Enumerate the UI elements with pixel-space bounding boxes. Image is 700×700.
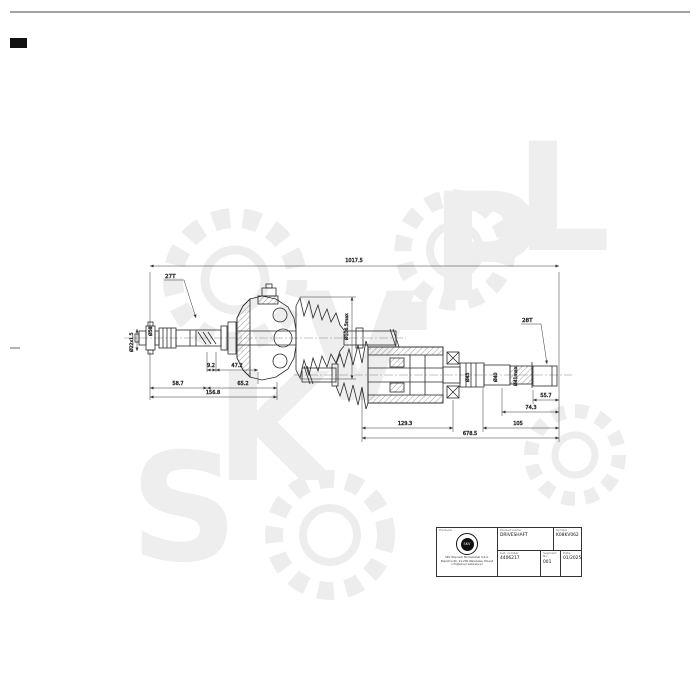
segment-value: 001	[541, 559, 560, 568]
drawing-sheet: S K V . P L	[0, 0, 700, 700]
dim-boot-max-dia: Ø106.5max	[343, 313, 350, 340]
dim-55-7: 55.7	[540, 393, 551, 399]
ref-spline-right: 28T	[522, 318, 533, 324]
dim-shaft-dia: Ø58	[147, 326, 154, 336]
company-address: SKV Wojciech Michałowski S.K.A. Paprotna…	[437, 556, 497, 566]
date-cell: Date 01/2025	[561, 551, 581, 576]
symbol-value: K08KV062	[554, 532, 581, 541]
dim-thread: Ø22x1.5	[128, 332, 135, 352]
watermark-letter: L	[515, 112, 611, 286]
date-value: 01/2025	[561, 555, 581, 564]
dim-58-7: 58.7	[172, 381, 183, 387]
producer-label: Producer	[437, 528, 497, 532]
ref-spline-left: 27T	[165, 274, 176, 280]
dim-156-8: 156.8	[206, 390, 220, 396]
dim-129-3: 129.3	[398, 421, 412, 427]
segment-cell: Segment No. 001	[541, 551, 561, 576]
company-logo-icon: SKV	[456, 533, 478, 555]
symbol-cell: Symbol K08KV062	[554, 528, 581, 551]
product-name-cell: Product name DRIVESHAFT	[498, 528, 554, 551]
cat-number-cell: Cat. number 4406217	[498, 551, 541, 576]
title-block: Producer SKV SKV Wojciech Michałowski S.…	[436, 527, 582, 577]
dim-dia-41max: Ø41max	[512, 366, 519, 386]
dim-dia-40: Ø40	[492, 372, 499, 382]
binding-mark	[10, 38, 27, 48]
company-line: info@skv.pl www.skv.pl	[437, 563, 497, 566]
cat-number-value: 4406217	[498, 555, 540, 564]
dim-74-3: 74.3	[525, 405, 536, 411]
dim-678-5: 678.5	[463, 431, 477, 437]
segment-label: Segment No.	[541, 551, 560, 559]
technical-drawing-canvas: S K V . P L	[0, 0, 700, 700]
dim-dia-45: Ø45	[464, 372, 471, 382]
dim-105: 105	[513, 421, 523, 427]
title-block-producer-cell: Producer SKV SKV Wojciech Michałowski S.…	[437, 528, 498, 576]
dim-overall-length: 1017.5	[345, 258, 363, 264]
dim-65-2: 65.2	[237, 381, 248, 387]
dim-9-2: 9.2	[207, 363, 215, 369]
dim-47-2: 47.2	[231, 363, 242, 369]
product-name-value: DRIVESHAFT	[498, 532, 553, 541]
company-logo-text: SKV	[461, 538, 474, 551]
